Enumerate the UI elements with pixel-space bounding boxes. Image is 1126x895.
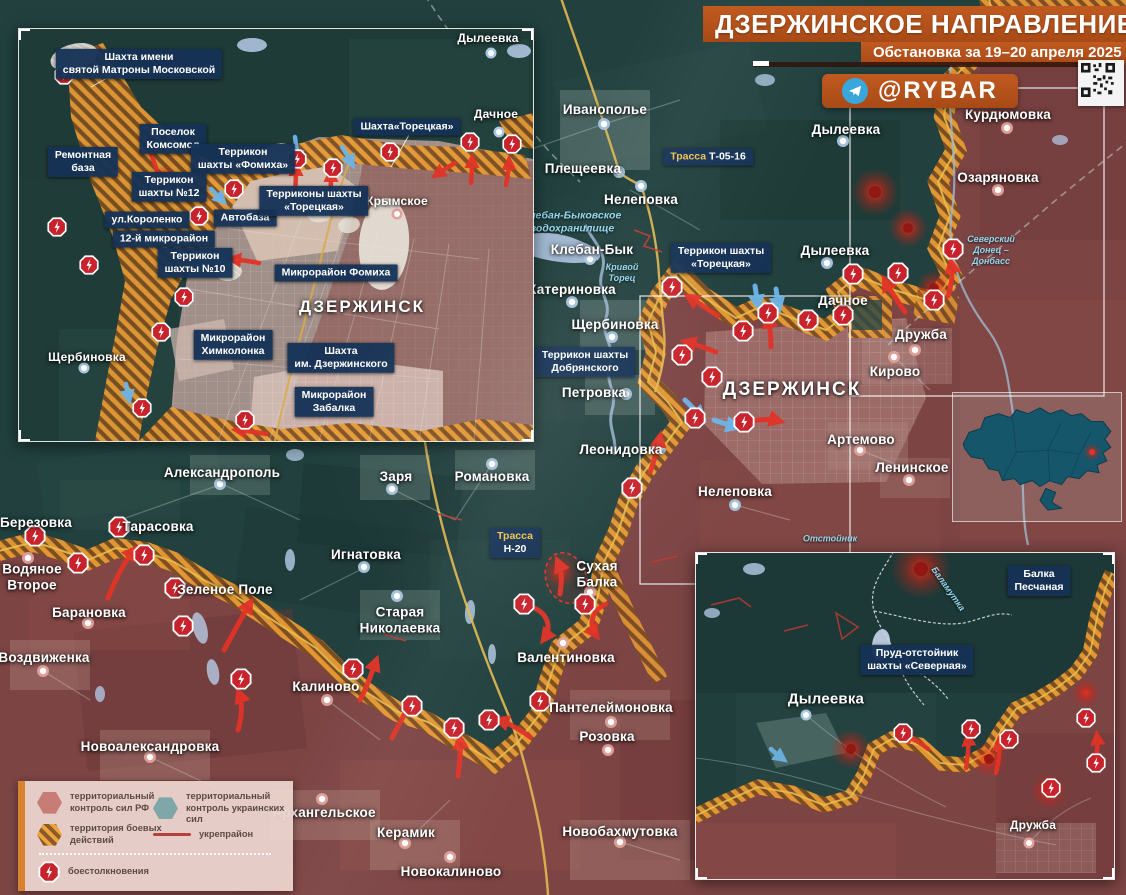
map-title: ДЗЕРЖИНСКОЕ НАПРАВЛЕНИЕ xyxy=(703,6,1126,42)
legend-separator xyxy=(39,853,271,855)
legend-clash-label: боестолкновения xyxy=(68,866,149,878)
legend-rf-hex-icon xyxy=(37,792,62,814)
telegram-icon xyxy=(842,78,868,104)
inset-dyleevka-area: Дылеевка Дружба Балка Песчаная Пруд-отст… xyxy=(695,552,1115,880)
rybar-badge[interactable]: @RYBAR xyxy=(822,74,1018,108)
legend-combat-hex-icon xyxy=(37,824,62,846)
legend-fortline-icon xyxy=(153,833,191,836)
legend-clash-icon xyxy=(38,861,60,883)
qr-code xyxy=(1078,60,1124,106)
legend-fort-label: укрепрайон xyxy=(199,829,253,841)
inset-dzerzhinsk-city: Дылеевка Дачное Крымское Щербиновка ДЗЕР… xyxy=(18,28,534,442)
title-banner: ДЗЕРЖИНСКОЕ НАПРАВЛЕНИЕ Обстановка за 19… xyxy=(703,6,1126,65)
banner-underline-dash xyxy=(753,61,769,66)
telegram-handle: @RYBAR xyxy=(878,77,998,105)
banner-underline xyxy=(753,62,1100,67)
ukraine-locator-map xyxy=(952,392,1122,522)
legend-ua-hex-icon xyxy=(153,797,178,819)
map-legend: территориальный контроль сил РФ территор… xyxy=(18,781,293,891)
legend-ua-label: территориальный контроль украинских сил xyxy=(186,791,286,826)
map-canvas: Иванополье Плещеевка Нелеповка Клебан-Бы… xyxy=(0,0,1126,895)
inset-se-art xyxy=(696,553,1114,879)
ukraine-silhouette xyxy=(953,393,1119,519)
inset-city-art xyxy=(19,29,533,441)
